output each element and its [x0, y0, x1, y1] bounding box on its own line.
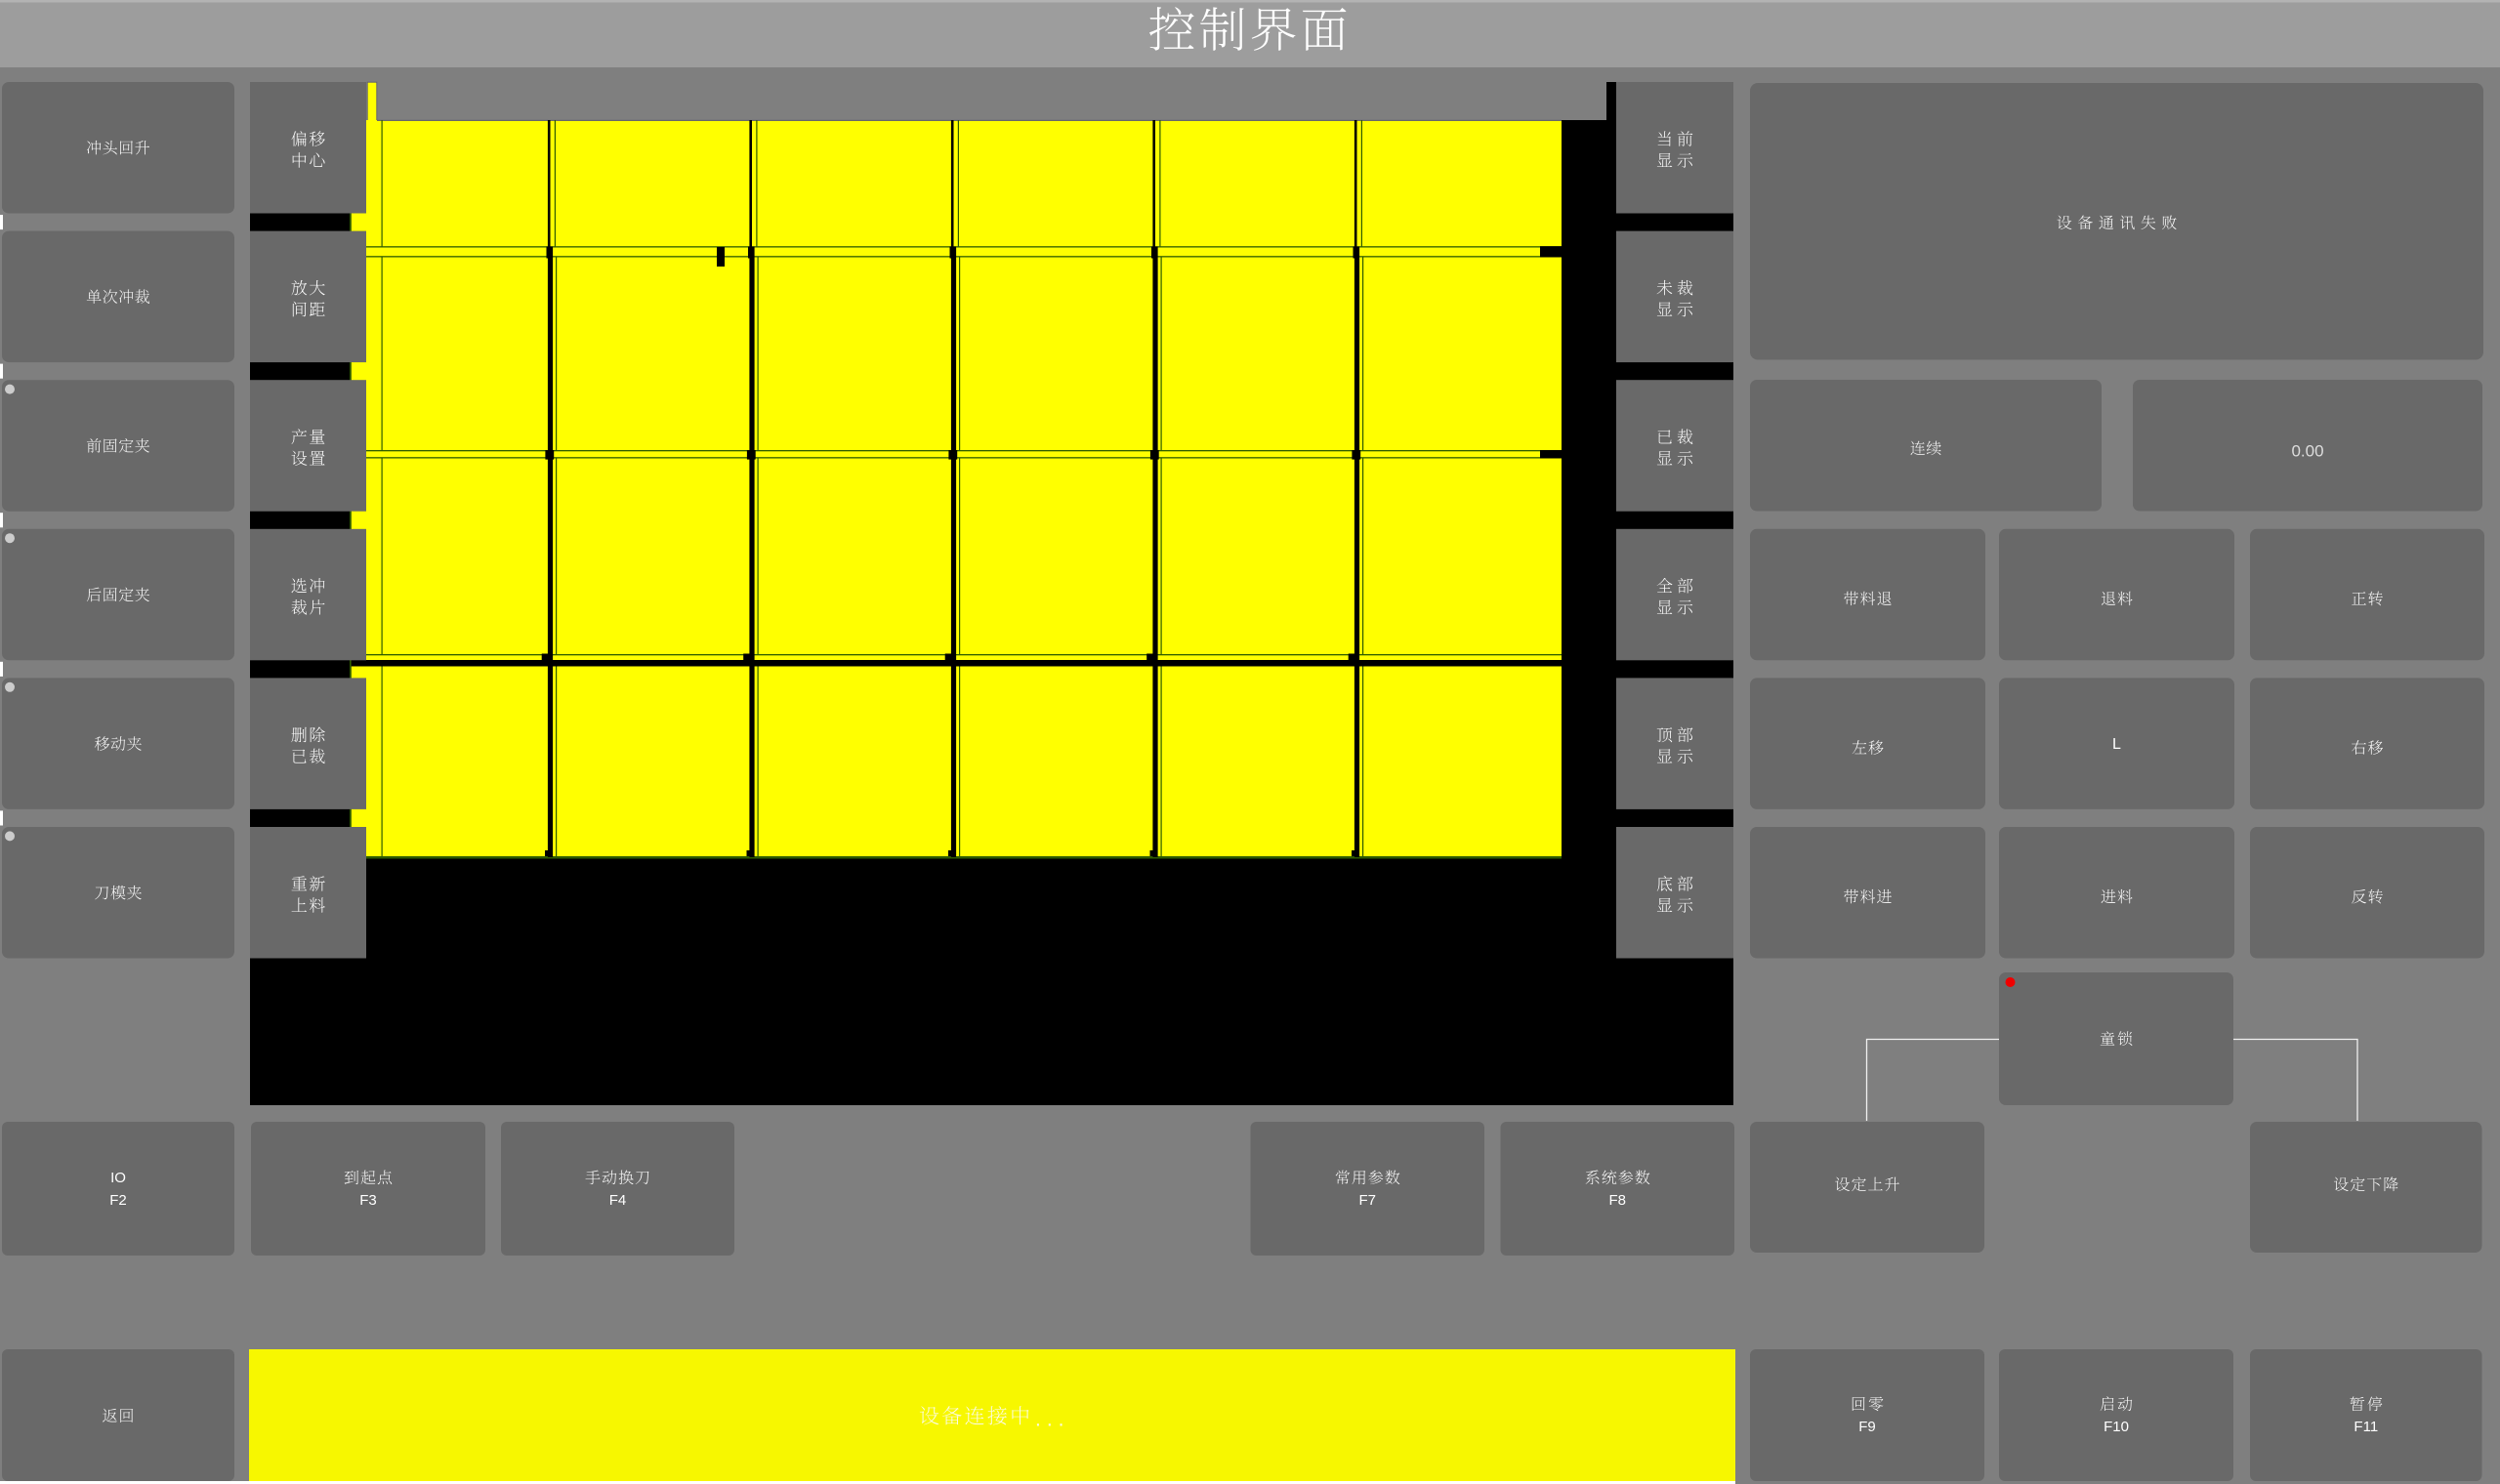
svg-text:IO: IO: [110, 1170, 126, 1186]
svg-text:F11: F11: [2354, 1419, 2378, 1435]
svg-text:F4: F4: [609, 1192, 627, 1209]
svg-text:...: ...: [1035, 1408, 1070, 1430]
svg-text:F2: F2: [109, 1192, 127, 1209]
svg-text:L: L: [2112, 736, 2121, 753]
svg-text:F9: F9: [1858, 1419, 1876, 1435]
svg-text:F3: F3: [359, 1192, 377, 1209]
svg-text:F10: F10: [2104, 1419, 2129, 1435]
svg-text:F8: F8: [1608, 1192, 1626, 1209]
svg-text:F7: F7: [1358, 1192, 1376, 1209]
svg-text:0.00: 0.00: [2291, 441, 2323, 460]
